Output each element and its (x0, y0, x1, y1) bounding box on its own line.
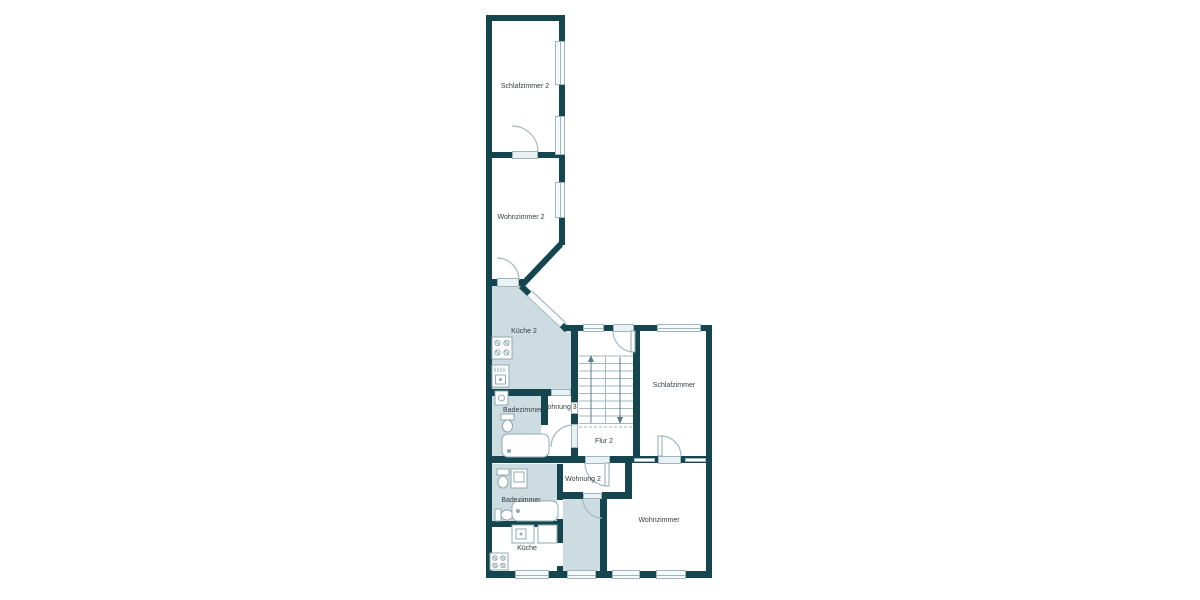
kitchen-sink-icon (512, 525, 534, 543)
room-label-wohnzimmer: Wohnzimmer (638, 517, 679, 525)
door-opening (571, 424, 578, 448)
room-fill-badezimmer-2 (492, 464, 557, 521)
room-label-schlafzimmer-2: Schlafzimmer 2 (501, 83, 549, 91)
window-icon (583, 324, 604, 332)
wall (600, 499, 607, 571)
stairs-icon (579, 356, 633, 427)
room-label-wohnzimmer-2: Wohnzimmer 2 (498, 214, 545, 222)
wall (571, 331, 578, 402)
cabinet-icon (538, 525, 557, 543)
room-fill-corridor-wohnung-2 (563, 499, 600, 571)
window-icon (567, 570, 596, 579)
arrow-up-icon (588, 355, 594, 423)
room-label-flur-2: Flur 2 (595, 438, 613, 446)
door-opening (585, 456, 610, 464)
room-label-wohnung-2: Wohnung 2 (565, 476, 601, 484)
floor-plan: Schlafzimmer 2 Wohnzimmer 2 Küche 2 Bade… (0, 0, 1200, 600)
wall (633, 331, 640, 463)
wall (486, 15, 565, 21)
wall (541, 447, 548, 456)
diagonal-wall (523, 244, 561, 284)
door-opening (613, 324, 634, 332)
wall-inset (634, 458, 655, 462)
door-opening (658, 456, 681, 464)
wall (563, 492, 583, 499)
room-label-schlafzimmer: Schlafzimmer (653, 382, 695, 390)
wall (557, 464, 563, 500)
wall (492, 521, 563, 527)
room-label-badezimmer-2: Badezimmer (501, 497, 540, 505)
window-icon (515, 570, 549, 579)
room-fill-kueche-2 (492, 284, 571, 389)
door-opening (583, 493, 602, 499)
wall (602, 492, 632, 499)
room-label-wohnung-3: Wohnung 3 (541, 404, 577, 412)
arrow-down-icon (617, 357, 623, 424)
door-opening (551, 389, 571, 396)
window-icon (555, 116, 565, 155)
window-icon (612, 570, 640, 579)
wall (557, 566, 563, 572)
room-label-badezimmer-3: Badezimmer (503, 407, 542, 415)
wall (571, 414, 578, 424)
window-icon (555, 182, 565, 218)
wall (486, 456, 585, 463)
room-label-kueche: Küche (517, 545, 537, 553)
door-opening (497, 278, 519, 287)
window-icon (555, 41, 565, 85)
window-icon (656, 570, 686, 579)
wall (486, 15, 492, 578)
stove-icon (490, 553, 508, 570)
room-fill-badezimmer-3 (492, 396, 541, 456)
wall (706, 325, 712, 578)
door-opening (512, 151, 538, 159)
window-icon (657, 324, 701, 332)
room-label-kueche-2: Küche 2 (511, 328, 537, 336)
wall-inset (685, 458, 706, 462)
